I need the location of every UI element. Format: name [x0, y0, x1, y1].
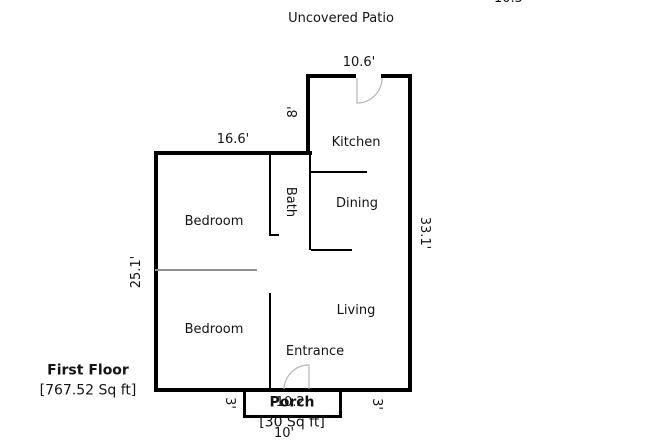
wall-kitchen-dining-divider: [311, 171, 367, 173]
dim-porch-side-left: 3': [222, 397, 236, 409]
room-label-living: Living: [337, 304, 376, 318]
clipped-dimension-label: 10.5': [494, 0, 527, 6]
floor-plan-canvas: Uncovered Patio 10.5' 10.6' 8' 16.6' Kit…: [0, 0, 650, 444]
room-label-porch: Porch: [269, 395, 314, 410]
wall-dining-bottom: [311, 249, 352, 251]
wall-top: [154, 151, 312, 155]
dim-left-height: 25.1': [130, 256, 144, 289]
floor-area-label: [767.52 Sq ft]: [40, 383, 137, 398]
wall-kitchen-left: [306, 74, 310, 155]
room-label-bedroom-1: Bedroom: [185, 215, 244, 229]
dim-kitchen-width: 10.6': [343, 56, 376, 70]
wall-bath-left: [269, 155, 271, 236]
wall-living-entrance: [269, 293, 271, 388]
wall-bath-right: [309, 155, 311, 250]
wall-right: [408, 74, 412, 392]
dim-right-height: 33.1': [417, 217, 431, 250]
wall-bath-jamb: [269, 234, 279, 236]
wall-left: [154, 151, 158, 392]
uncovered-patio-label: Uncovered Patio: [288, 12, 394, 26]
dim-top-width: 16.6': [217, 133, 250, 147]
room-label-entrance: Entrance: [286, 345, 344, 359]
dim-porch-width: 10': [274, 427, 294, 441]
floor-name-label: First Floor: [47, 363, 129, 378]
room-label-bedroom-2: Bedroom: [185, 323, 244, 337]
room-label-bath: Bath: [283, 187, 297, 217]
dim-porch-side-right: 3': [369, 398, 383, 410]
wall-kitchen-top-right: [381, 74, 412, 78]
dim-kitchen-left-height: 8': [287, 106, 301, 118]
wall-bedroom-divider: [155, 269, 257, 271]
room-label-kitchen: Kitchen: [332, 136, 381, 150]
entrance-door-arc: [284, 365, 309, 390]
wall-kitchen-top-left: [306, 74, 356, 78]
kitchen-door-arc: [357, 78, 382, 103]
room-label-dining: Dining: [336, 197, 378, 211]
